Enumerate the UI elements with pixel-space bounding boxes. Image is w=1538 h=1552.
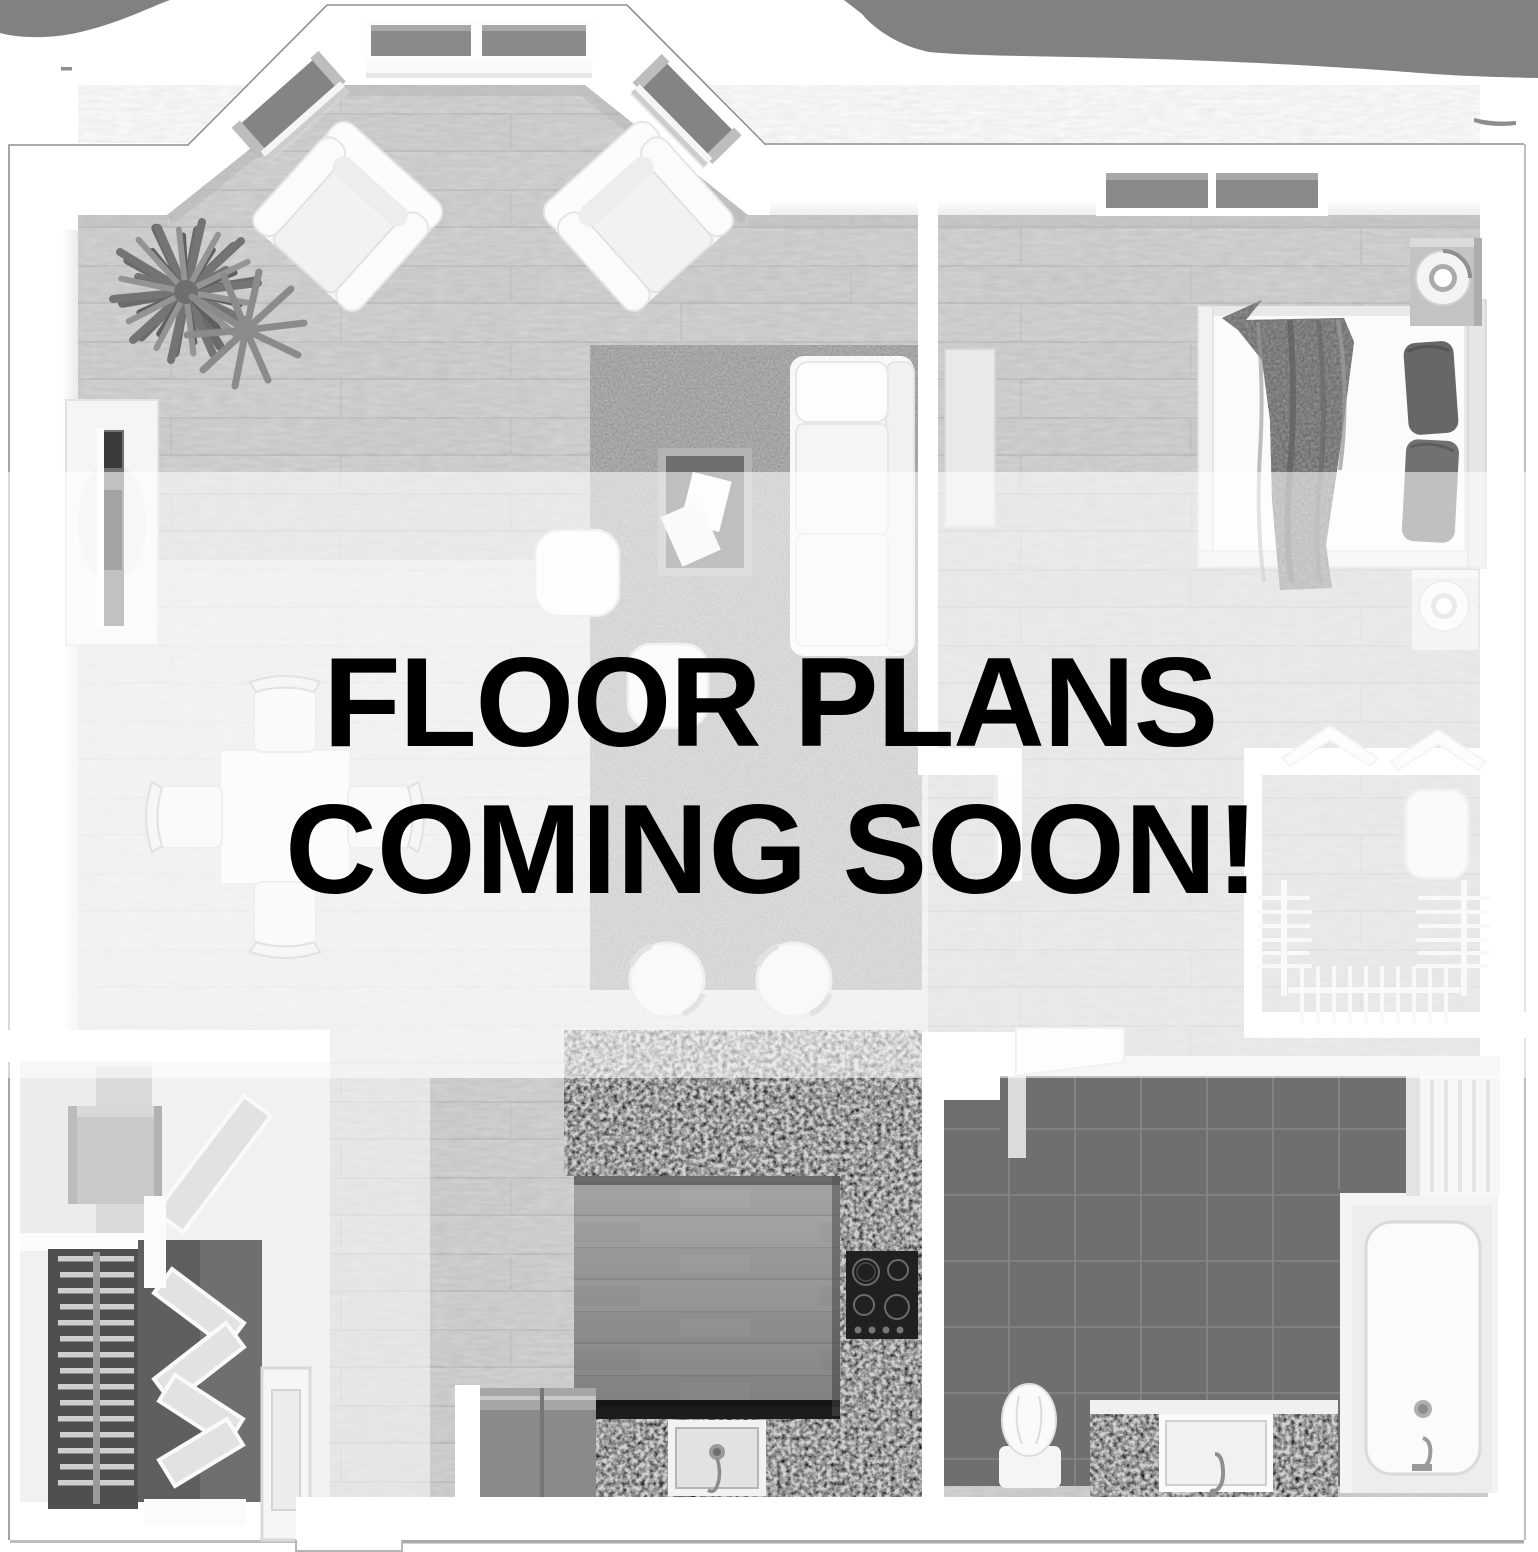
svg-text:COMING SOON!: COMING SOON! bbox=[285, 778, 1259, 920]
svg-text:FLOOR PLANS: FLOOR PLANS bbox=[323, 631, 1217, 773]
